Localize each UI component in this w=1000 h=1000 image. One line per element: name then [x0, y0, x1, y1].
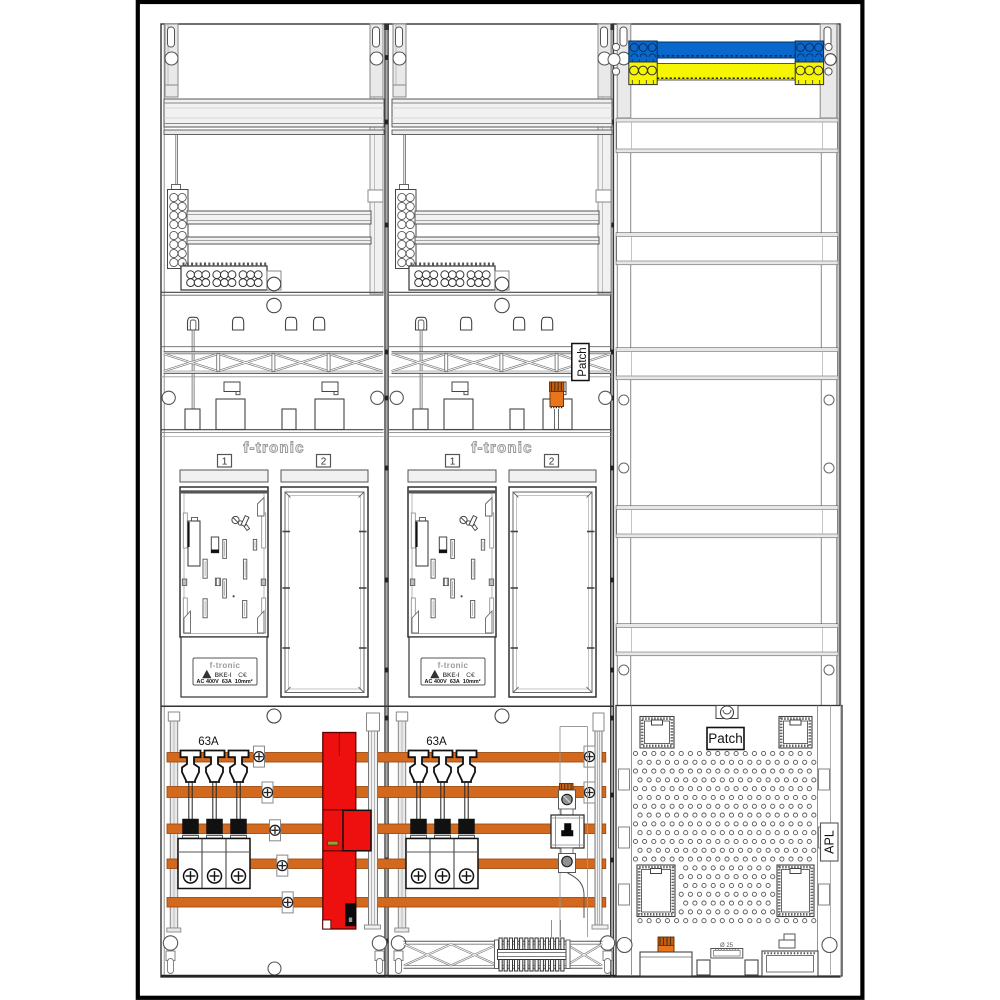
svg-text:2: 2 [549, 456, 555, 467]
svg-text:APL: APL [823, 830, 837, 854]
svg-text:Patch: Patch [577, 347, 589, 376]
svg-text:Patch: Patch [708, 731, 743, 746]
svg-text:C€: C€ [466, 672, 475, 679]
svg-text:f-tronic: f-tronic [210, 661, 241, 670]
svg-text:1: 1 [222, 456, 228, 467]
svg-text:63A: 63A [198, 736, 219, 748]
svg-text:63A: 63A [426, 736, 447, 748]
svg-text:AC 400V 63A 10mm²: AC 400V 63A 10mm² [197, 679, 253, 685]
svg-text:BKE-I: BKE-I [215, 672, 232, 679]
svg-text:2: 2 [321, 456, 327, 467]
svg-text:f-tronic: f-tronic [243, 440, 304, 457]
svg-text:AC 400V 63A 10mm²: AC 400V 63A 10mm² [425, 679, 481, 685]
svg-text:C€: C€ [238, 672, 247, 679]
svg-text:1: 1 [450, 456, 456, 467]
svg-text:BKE-I: BKE-I [443, 672, 460, 679]
svg-text:f-tronic: f-tronic [471, 440, 532, 457]
svg-text:f-tronic: f-tronic [438, 661, 469, 670]
